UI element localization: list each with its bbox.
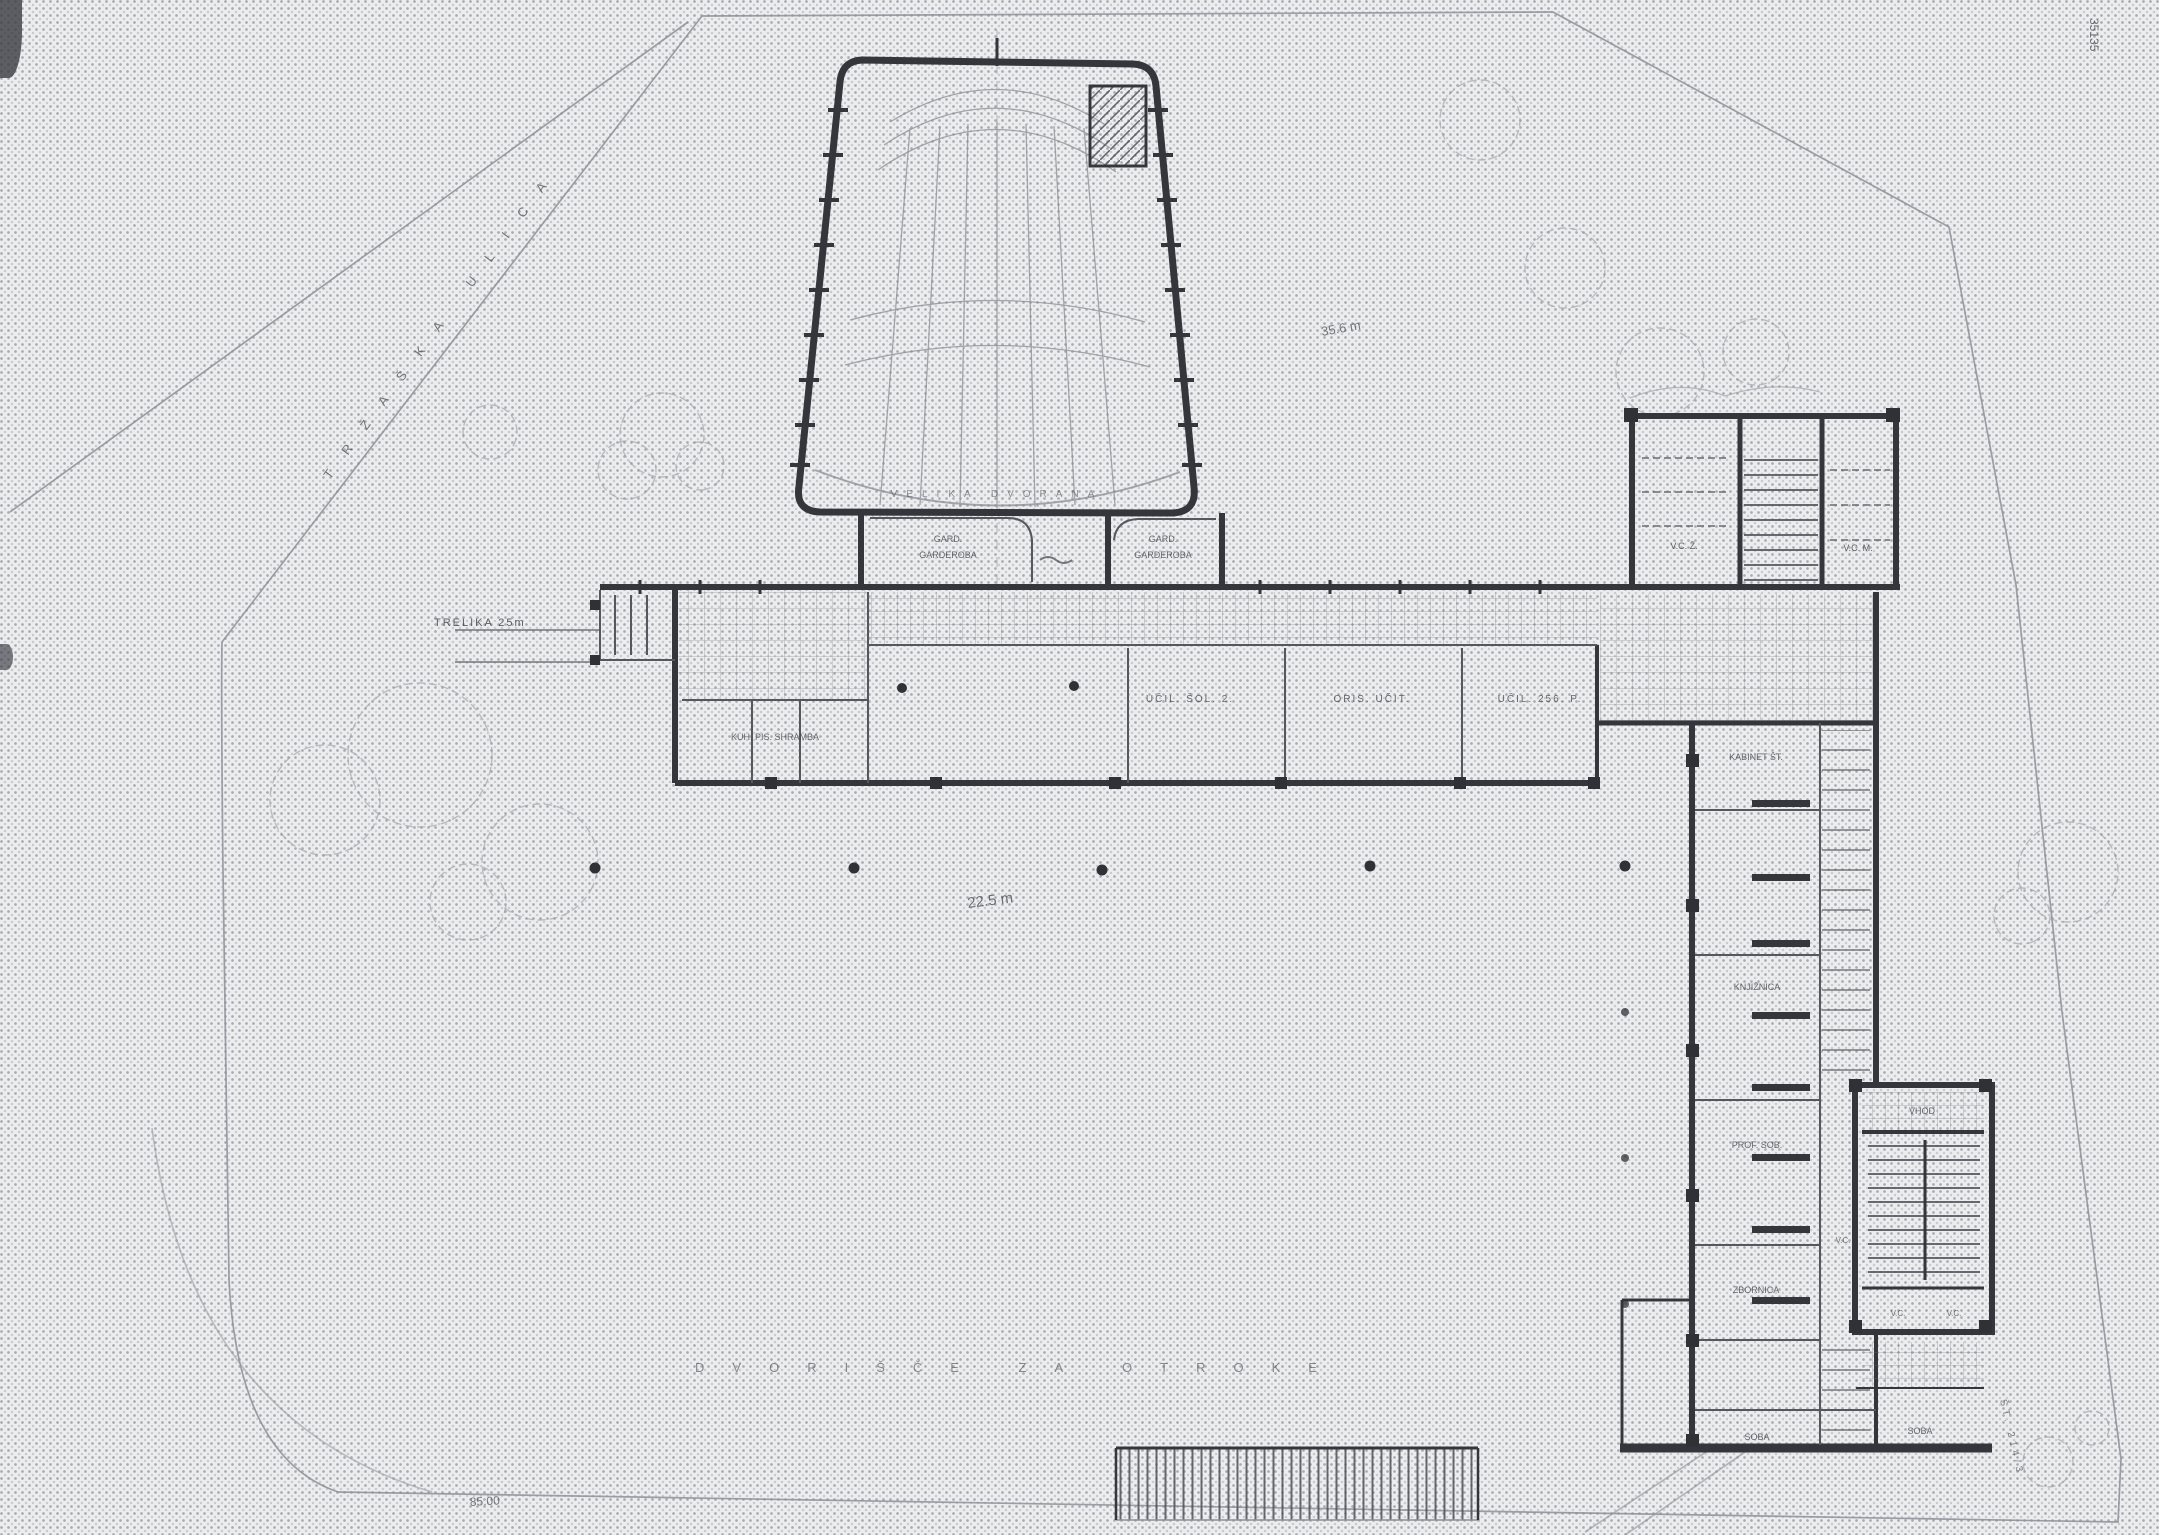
bush-top-left-4 <box>457 399 523 465</box>
label-wing-room-5: SOBA <box>1744 1432 1769 1442</box>
entrance-hall-grid <box>677 590 866 700</box>
label-service-rooms: KUH. PIS. SHRAMBA <box>731 732 819 742</box>
wc-stair-block <box>1624 408 1900 588</box>
bush-top-left-3 <box>672 438 728 494</box>
bush-north-east-3 <box>1616 328 1704 416</box>
boundary-north <box>702 12 1553 16</box>
west-wing <box>455 580 1900 789</box>
label-street: TRŽAŠKA ULICA <box>320 162 562 482</box>
hall-column-1 <box>897 683 907 693</box>
wing-door-bars <box>1752 800 1810 1304</box>
label-wing-wc-note: V.C. <box>1836 1236 1851 1245</box>
label-courtyard-caption: DVORIŠČE ZA OTROKE <box>695 1360 1345 1375</box>
road-edge-east <box>222 16 702 642</box>
tree-west-3 <box>463 785 617 939</box>
label-auditorium: VELIKA DVORANA <box>891 489 1104 500</box>
label-cloakroom-right-1: GARD. <box>1149 534 1178 544</box>
courtyard-trees <box>590 861 1631 1309</box>
boundary-inner-arc <box>152 1128 432 1492</box>
cloakroom-neck <box>861 512 1222 586</box>
corridor-grid <box>868 592 1597 645</box>
label-cloakroom-left-2: GARDEROBA <box>919 550 977 560</box>
label-parcel-note: ŠT. 214/3 <box>1997 1398 2027 1477</box>
wc-corner-post-left <box>1624 408 1638 422</box>
wc-stall-lines <box>1642 458 1890 540</box>
auditorium-stair-hatch <box>1090 86 1146 166</box>
bush-top-left-2 <box>586 429 668 511</box>
gate-post-south <box>590 655 600 665</box>
label-courtyard-dim: 22.5 m <box>966 890 1014 912</box>
scanned-floor-plan-page: TRŽAŠKA ULICA TRELIKA 25m VELIKA DVORANA… <box>0 0 2159 1535</box>
bush-top-left-1 <box>620 393 704 477</box>
grand-steps <box>1116 1448 1478 1520</box>
label-wing-room-6: SOBA <box>1907 1426 1932 1436</box>
gate-post-north <box>590 600 600 610</box>
label-wing-room-2: KNJIŽNICA <box>1734 982 1781 992</box>
floor-plan-drawing: TRŽAŠKA ULICA TRELIKA 25m VELIKA DVORANA… <box>0 0 2159 1535</box>
label-cloakroom-right-2: GARDEROBA <box>1134 550 1192 560</box>
bush-southeast-2 <box>2075 1411 2109 1445</box>
label-wing-room-1: KABINET ŠT. <box>1729 752 1783 762</box>
label-wing-room-3: PROF. SOB. <box>1732 1140 1783 1150</box>
label-classroom-3: UČIL. 256. P. <box>1498 692 1583 705</box>
ground-scribble-wc-block <box>1630 387 1820 398</box>
site-boundary <box>10 12 2121 1535</box>
bush-north-east-4 <box>1710 306 1803 399</box>
label-entrance-gate: TRELIKA 25m <box>434 617 526 629</box>
wc-stair-treads <box>1744 460 1818 580</box>
label-plate-number: 35135 <box>2087 18 2101 52</box>
east-hall-grid <box>1600 594 1876 721</box>
tree-west-1 <box>348 683 492 827</box>
wc-corner-post-right <box>1886 408 1900 422</box>
wing-corridor-rungs-upper <box>1822 730 1874 1082</box>
label-cloakroom-left-1: GARD. <box>934 534 963 544</box>
bush-north-east-2 <box>1514 217 1617 320</box>
label-classroom-1: UČIL. ŠOL. 2. <box>1146 692 1234 705</box>
label-se-stair-hall: VHOD <box>1909 1106 1936 1116</box>
label-wc-right: V.C. M. <box>1843 543 1872 553</box>
bush-north-east-1 <box>1425 65 1534 174</box>
hall-column-2 <box>1069 681 1079 691</box>
auditorium <box>790 30 1202 585</box>
se-stair-treads <box>1868 1140 1980 1280</box>
label-classroom-2: ORIS. UČIT. <box>1333 692 1410 705</box>
tree-west-2 <box>250 725 400 875</box>
tree-west-4 <box>421 855 514 948</box>
se-lower-grid <box>1862 1342 1984 1388</box>
footpath-southeast <box>1585 1452 1745 1535</box>
label-wc-left: V.C. Ž. <box>1670 541 1697 551</box>
label-north-dim: 35.6 m <box>1320 317 1362 339</box>
label-se-wc-1: V.C. <box>1891 1309 1906 1318</box>
label-west-dim: 85.00 <box>469 1493 500 1509</box>
bush-east-1 <box>2004 808 2132 936</box>
label-wing-room-4: ZBORNICA <box>1733 1285 1780 1295</box>
label-se-wc-2: V.C. <box>1947 1309 1962 1318</box>
